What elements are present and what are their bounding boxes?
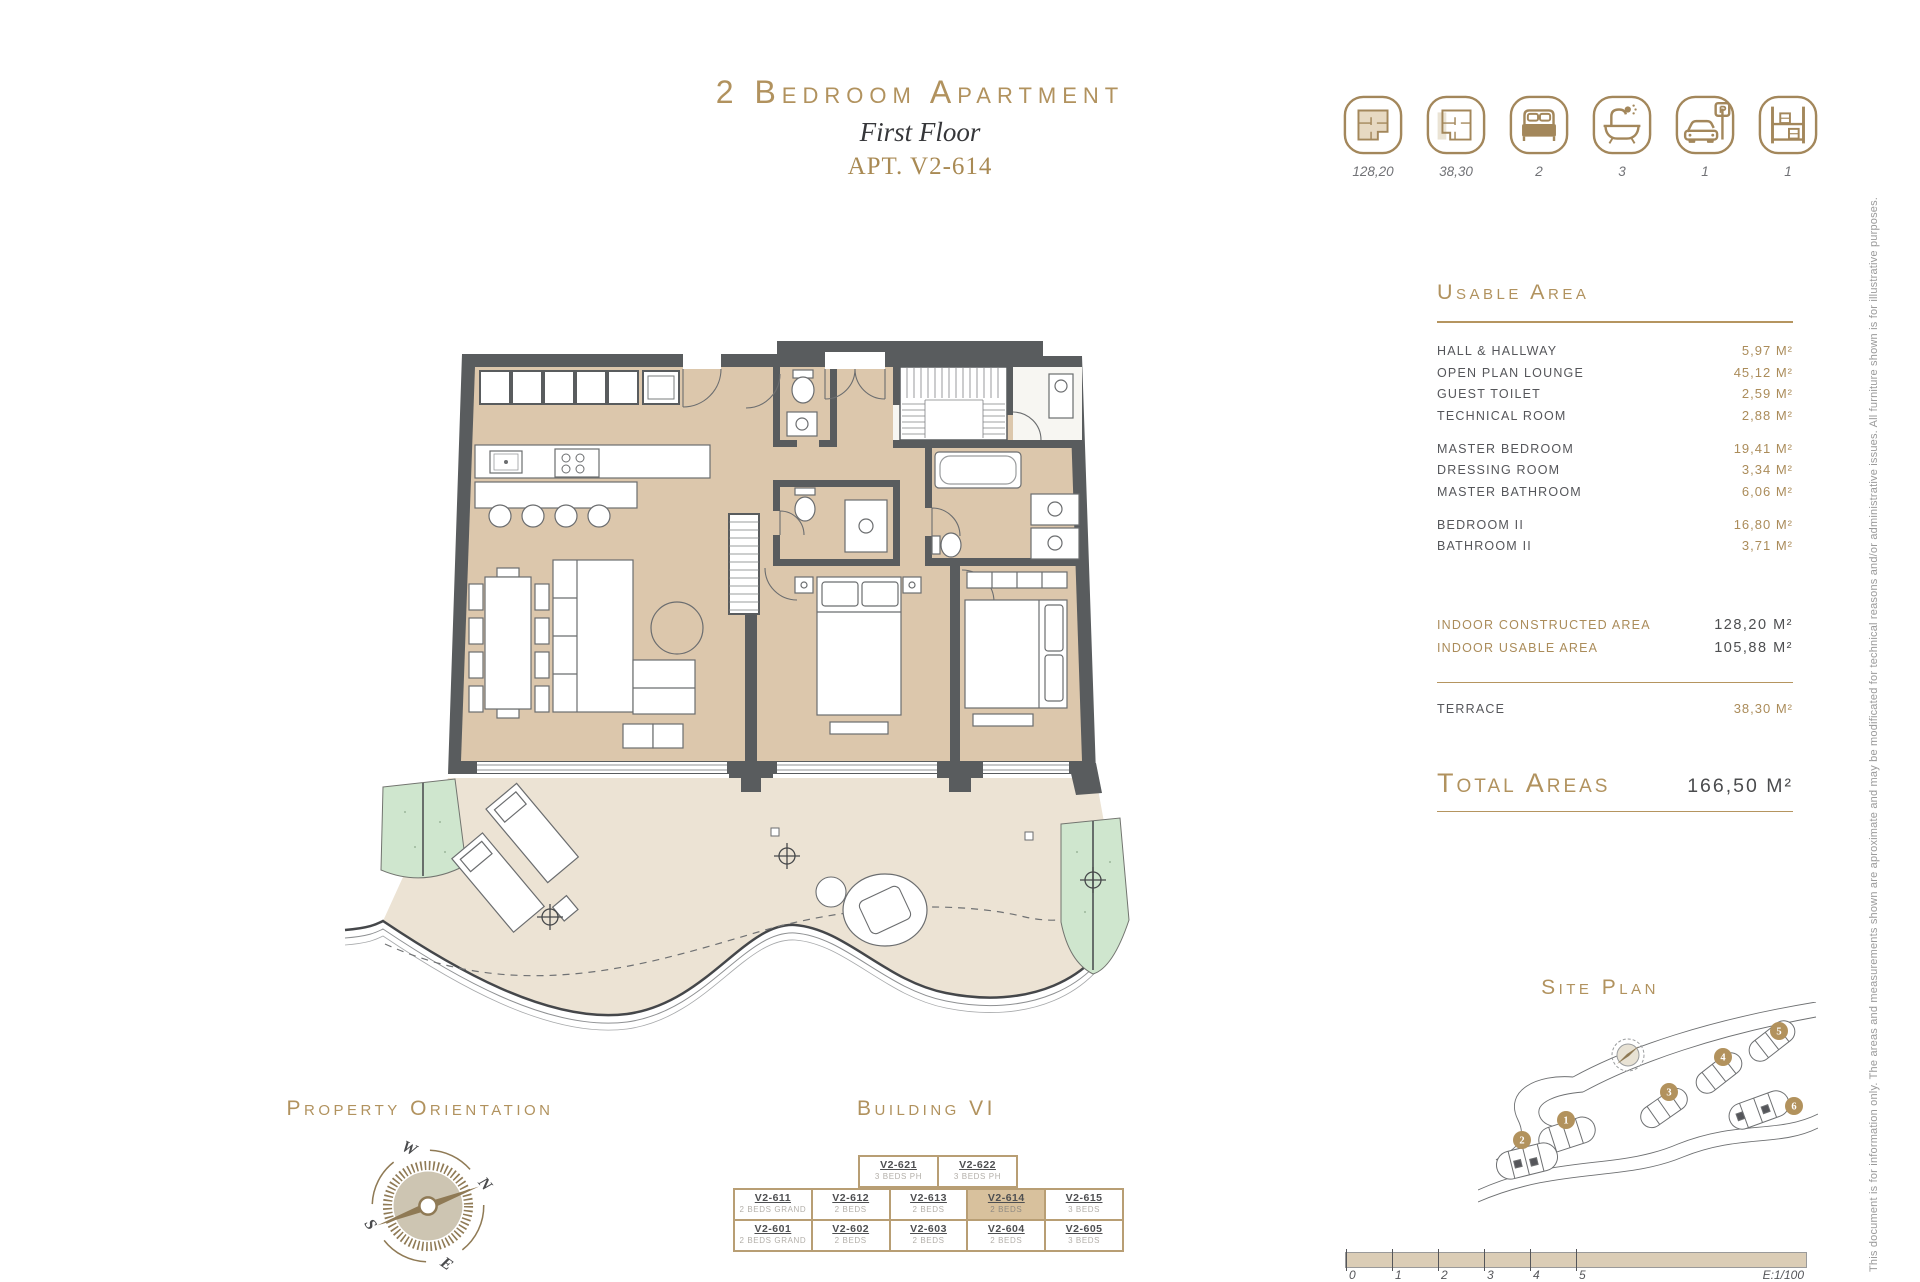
unit-cell-v2-602: V2-602 2 BEDS xyxy=(813,1221,889,1250)
unit-cell-v2-622: V2-622 3 BEDS PH xyxy=(939,1157,1016,1186)
terrace-area-plan-icon xyxy=(1425,94,1487,156)
site-marker-2: 2 xyxy=(1519,1136,1524,1147)
feature-value: 38,30 xyxy=(1425,164,1487,179)
unit-cell-v2-601: V2-601 2 BEDS GRAND xyxy=(735,1221,811,1250)
building-penthouse-row: V2-621 3 BEDS PH V2-622 3 BEDS PH xyxy=(858,1155,1018,1188)
area-label: GUEST TOILET xyxy=(1437,387,1541,401)
terrace-light xyxy=(1025,832,1033,840)
staircase xyxy=(900,367,1007,440)
site-marker-1: 1 xyxy=(1563,1116,1568,1127)
unit-cell-v2-613: V2-613 2 BEDS xyxy=(891,1190,967,1219)
site-marker-5: 5 xyxy=(1776,1027,1781,1038)
dining-table xyxy=(469,568,549,718)
site-buildings xyxy=(1494,1016,1800,1182)
compass-hub xyxy=(419,1197,436,1214)
unit-cell-v2-605: V2-605 3 BEDS xyxy=(1046,1221,1122,1250)
summary-value: 105,88 M² xyxy=(1714,640,1793,656)
unit-cell-v2-603: V2-603 2 BEDS xyxy=(891,1221,967,1250)
building-unit-grid: V2-611 2 BEDS GRAND V2-612 2 BEDS V2-613… xyxy=(733,1188,1124,1252)
unit-cell-v2-604: V2-604 2 BEDS xyxy=(968,1221,1044,1250)
area-value: 16,80 M² xyxy=(1734,517,1793,532)
area-label: HALL & HALLWAY xyxy=(1437,344,1557,358)
site-marker-3: 3 xyxy=(1666,1088,1671,1099)
planter-right xyxy=(1061,818,1129,974)
disclaimer-text: This document is for information only. T… xyxy=(1868,0,1880,1272)
area-value: 2,59 M² xyxy=(1742,386,1793,401)
area-value: 38,30 M² xyxy=(1734,701,1793,716)
scale-tick xyxy=(1484,1249,1485,1271)
terrace-row: TERRACE 38,30 M² xyxy=(1437,701,1793,716)
divider xyxy=(1437,682,1793,683)
parking-icon xyxy=(1674,94,1736,156)
area-label: OPEN PLAN LOUNGE xyxy=(1437,366,1584,380)
divider xyxy=(1437,321,1793,323)
apartment-number: APT. V2-614 xyxy=(600,153,1240,181)
scale-tick xyxy=(1530,1249,1531,1271)
feature-parking: 1 xyxy=(1674,94,1736,179)
feature-value: 1 xyxy=(1674,164,1736,179)
area-value: 5,97 M² xyxy=(1742,343,1793,358)
scale-tick xyxy=(1346,1249,1347,1271)
area-value: 45,12 M² xyxy=(1734,365,1793,380)
feature-value: 1 xyxy=(1757,164,1819,179)
feature-storage: 1 xyxy=(1757,94,1819,179)
area-value: 19,41 M² xyxy=(1734,441,1793,456)
planter-left xyxy=(381,779,466,878)
area-value: 3,34 M² xyxy=(1742,462,1793,477)
feature-value: 128,20 xyxy=(1342,164,1404,179)
bedrooms-icon xyxy=(1508,94,1570,156)
compass: N E S W xyxy=(352,1130,504,1282)
unit-cell-v2-621: V2-621 3 BEDS PH xyxy=(860,1157,937,1186)
unit-cell-v2-615: V2-615 3 BEDS xyxy=(1046,1190,1122,1219)
floor-subtitle: First Floor xyxy=(600,117,1240,148)
terrace-light xyxy=(771,828,779,836)
bathrooms-icon xyxy=(1591,94,1653,156)
floor-plan-drawing xyxy=(325,262,1145,1062)
feature-bedrooms: 2 xyxy=(1508,94,1570,179)
area-label: TECHNICAL ROOM xyxy=(1437,409,1567,423)
feature-bathrooms: 3 xyxy=(1591,94,1653,179)
unit-cell-v2-611: V2-611 2 BEDS GRAND xyxy=(735,1190,811,1219)
area-value: 6,06 M² xyxy=(1742,484,1793,499)
scale-tick xyxy=(1576,1249,1577,1271)
summary-value: 128,20 M² xyxy=(1714,617,1793,633)
site-compass-rose xyxy=(1612,1039,1644,1071)
scale-tick xyxy=(1392,1249,1393,1271)
compass-e: E xyxy=(436,1253,456,1275)
compass-s: S xyxy=(361,1216,381,1234)
page-title: 2 Bedroom Apartment xyxy=(600,74,1240,111)
area-summary: INDOOR CONSTRUCTED AREA128,20 M² INDOOR … xyxy=(1437,617,1793,656)
area-label: DRESSING ROOM xyxy=(1437,463,1560,477)
feature-value: 3 xyxy=(1591,164,1653,179)
unit-cell-v2-612: V2-612 2 BEDS xyxy=(813,1190,889,1219)
area-label: MASTER BEDROOM xyxy=(1437,442,1574,456)
summary-label: INDOOR USABLE AREA xyxy=(1437,641,1598,655)
compass-w: W xyxy=(399,1137,421,1160)
area-label: BATHROOM II xyxy=(1437,539,1532,553)
area-value: 2,88 M² xyxy=(1742,408,1793,423)
total-areas-row: Total Areas 166,50 M² xyxy=(1437,768,1793,799)
technical-room xyxy=(1049,374,1073,418)
divider xyxy=(1437,811,1793,812)
area-label: BEDROOM II xyxy=(1437,518,1524,532)
compass-n: N xyxy=(474,1173,497,1195)
title-block: 2 Bedroom Apartment First Floor APT. V2-… xyxy=(600,74,1240,181)
building-heading: Building VI xyxy=(733,1097,1120,1121)
area-group-master: MASTER BEDROOM19,41 M² DRESSING ROOM3,34… xyxy=(1437,441,1793,499)
feature-summary: 128,20 38,30 2 3 xyxy=(1342,94,1819,179)
area-label: MASTER BATHROOM xyxy=(1437,485,1582,499)
summary-label: INDOOR CONSTRUCTED AREA xyxy=(1437,618,1651,632)
property-orientation-heading: Property Orientation xyxy=(225,1097,615,1121)
usable-area-heading: Usable Area xyxy=(1437,280,1793,305)
site-marker-4: 4 xyxy=(1720,1053,1726,1064)
site-plan-heading: Site Plan xyxy=(1480,976,1720,1000)
site-plan-map: 1 2 3 4 5 6 xyxy=(1478,1002,1818,1252)
area-group-bedroom2: BEDROOM II16,80 M² BATHROOM II3,71 M² xyxy=(1437,517,1793,554)
storage-icon xyxy=(1757,94,1819,156)
area-value: 3,71 M² xyxy=(1742,538,1793,553)
feature-terrace-area: 38,30 xyxy=(1425,94,1487,179)
total-areas-value: 166,50 M² xyxy=(1687,775,1793,798)
constructed-area-plan-icon xyxy=(1342,94,1404,156)
unit-cell-v2-614-highlighted: V2-614 2 BEDS xyxy=(968,1190,1044,1219)
usable-area-panel: Usable Area HALL & HALLWAY5,97 M² OPEN P… xyxy=(1437,280,1793,820)
area-group-living: HALL & HALLWAY5,97 M² OPEN PLAN LOUNGE45… xyxy=(1437,343,1793,423)
area-label: TERRACE xyxy=(1437,702,1505,716)
wardrobe xyxy=(729,514,759,614)
total-areas-label: Total Areas xyxy=(1437,768,1610,799)
feature-value: 2 xyxy=(1508,164,1570,179)
site-marker-6: 6 xyxy=(1791,1102,1796,1113)
feature-constructed-area: 128,20 xyxy=(1342,94,1404,179)
scale-tick xyxy=(1438,1249,1439,1271)
scale-bar: 0 1 2 3 4 5 E:1/100 xyxy=(1345,1252,1807,1268)
